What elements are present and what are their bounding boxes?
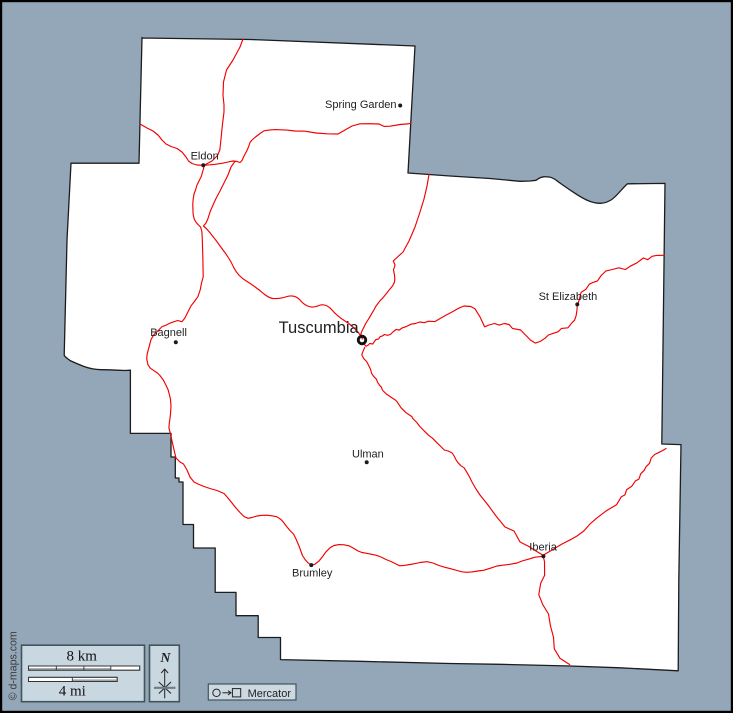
svg-text:4 mi: 4 mi <box>59 684 86 700</box>
svg-text:Brumley: Brumley <box>292 568 333 580</box>
svg-text:Iberia: Iberia <box>529 541 557 553</box>
svg-text:Eldon: Eldon <box>191 150 219 162</box>
svg-text:Spring Garden: Spring Garden <box>325 99 397 111</box>
svg-text:© d-maps.com: © d-maps.com <box>7 631 19 700</box>
svg-text:St Elizabeth: St Elizabeth <box>539 291 598 303</box>
svg-text:8 km: 8 km <box>66 649 97 665</box>
svg-text:Mercator: Mercator <box>248 688 292 700</box>
svg-text:Tuscumbia: Tuscumbia <box>279 319 360 337</box>
svg-text:Bagnell: Bagnell <box>150 327 187 339</box>
svg-text:N: N <box>159 651 171 666</box>
svg-text:Ulman: Ulman <box>352 449 384 461</box>
